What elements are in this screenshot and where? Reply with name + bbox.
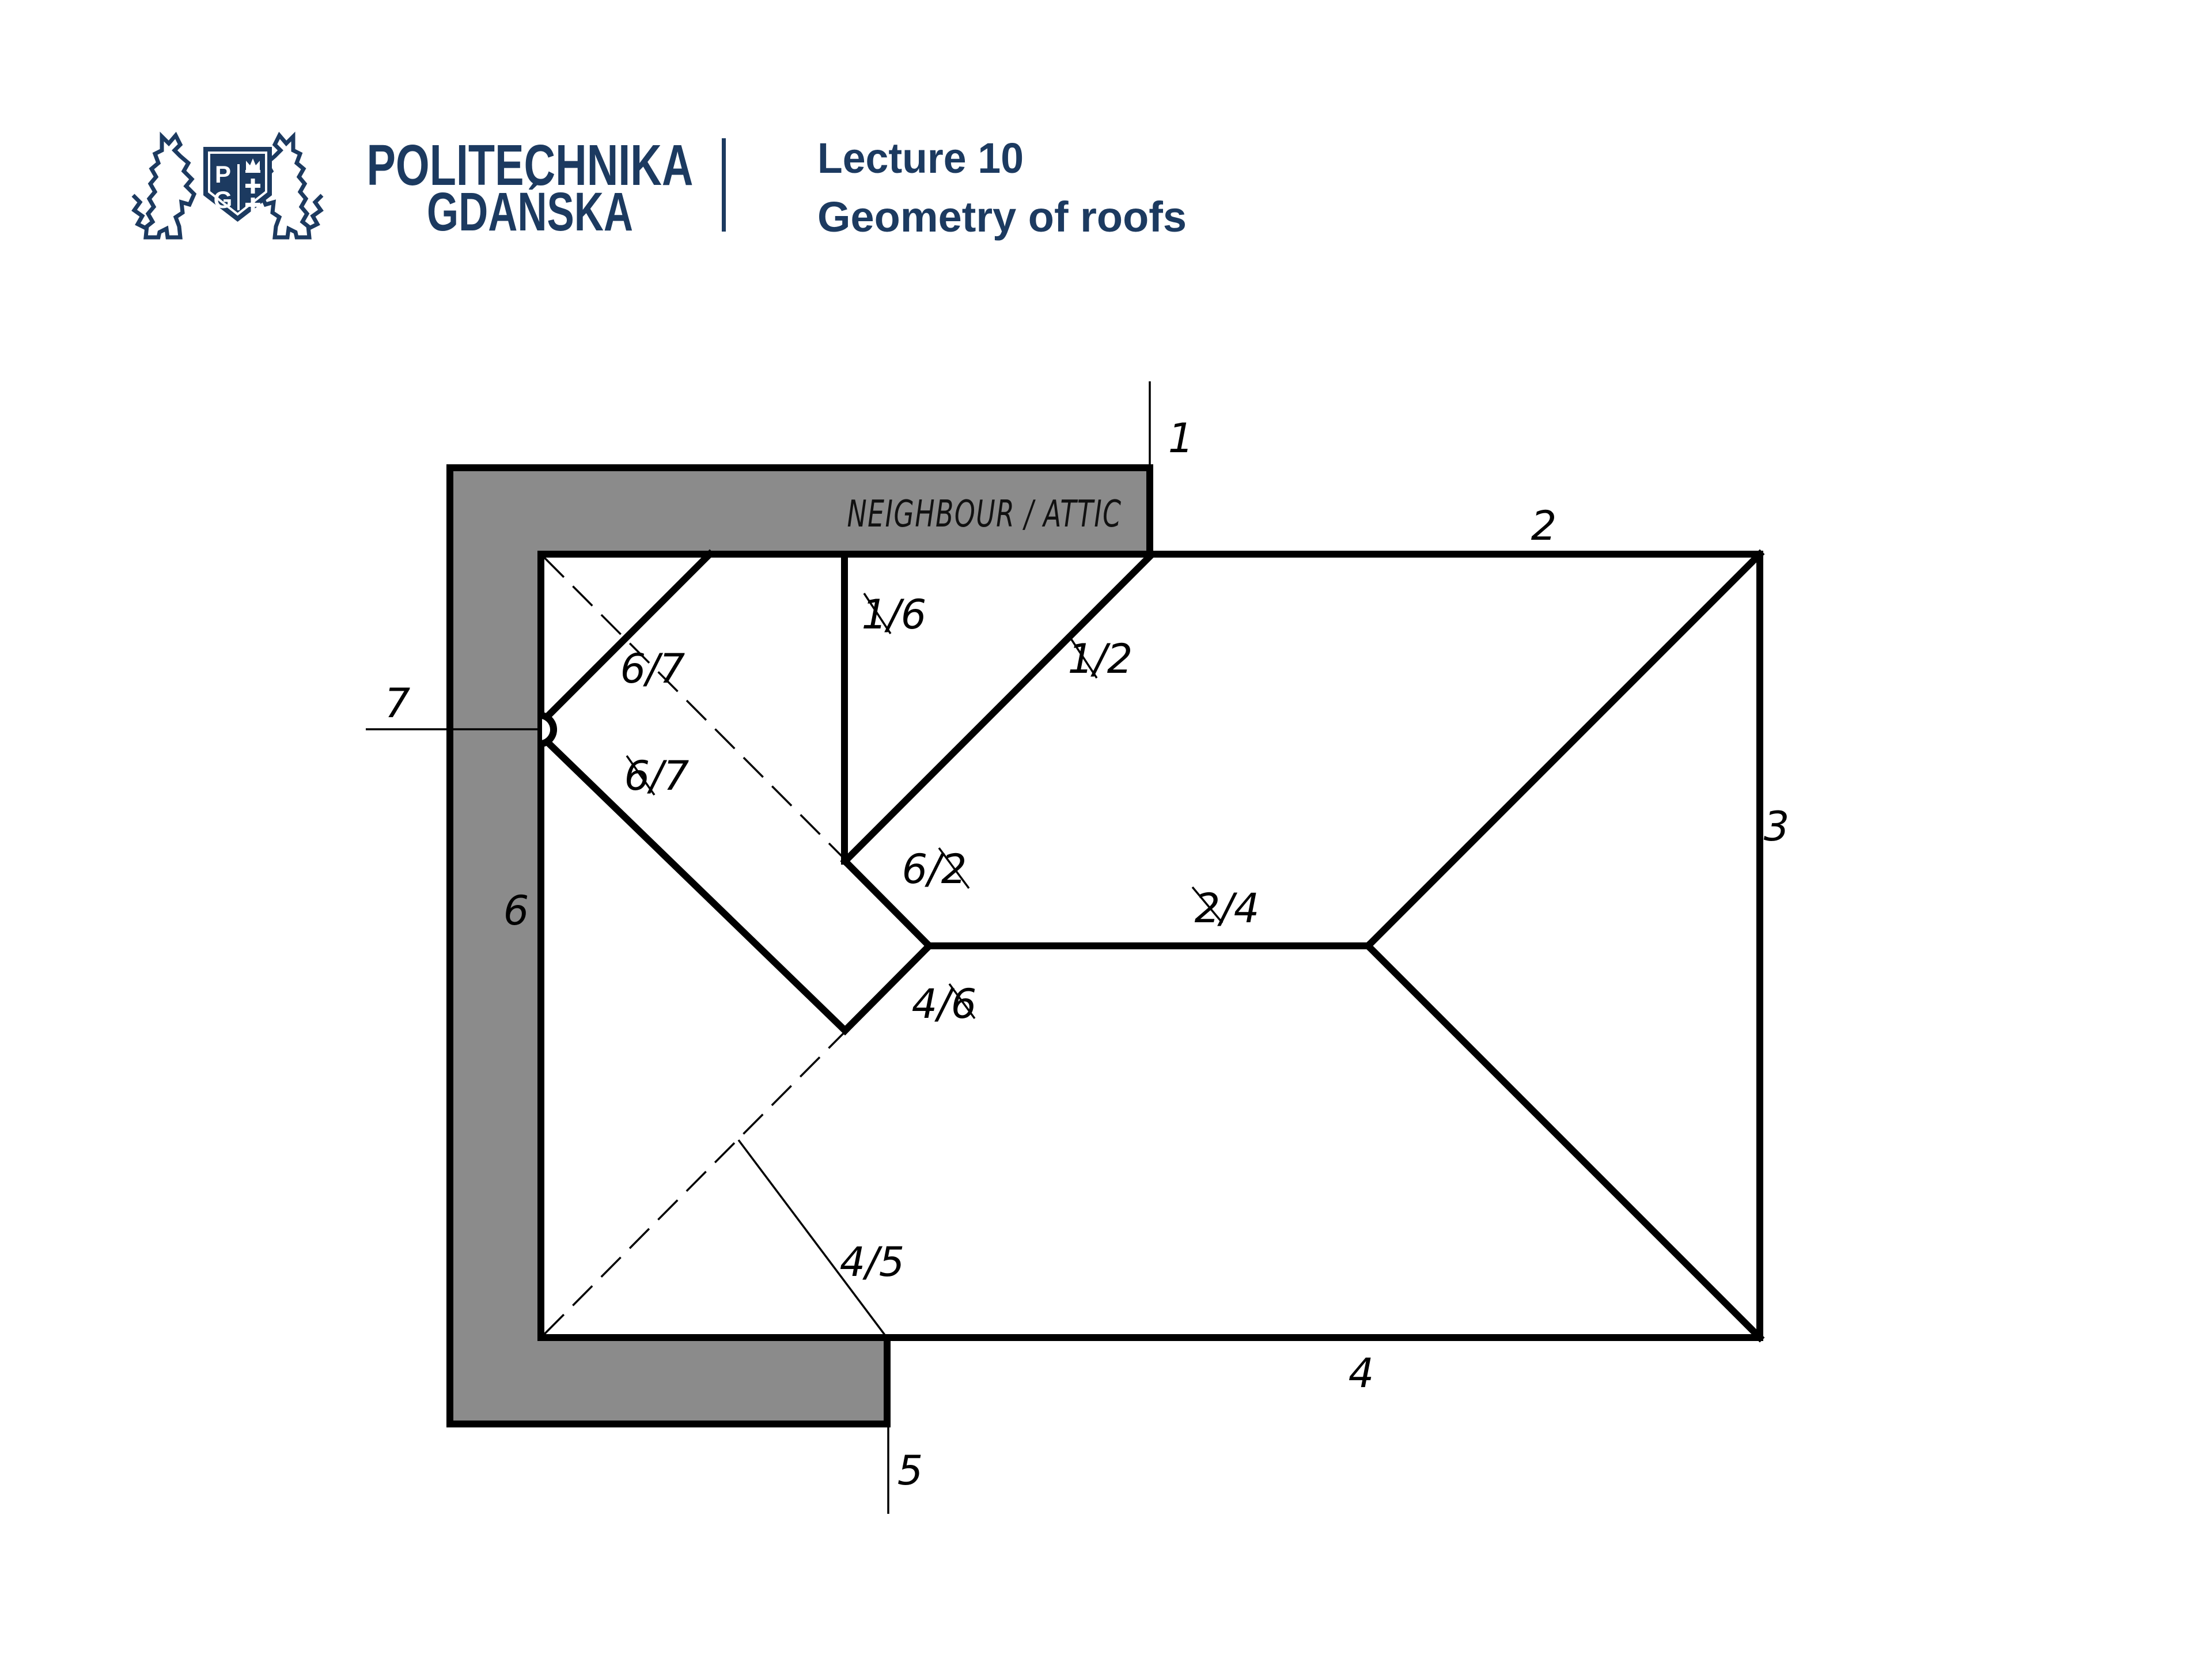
joint-label-1-6: 1/6 [862,591,927,638]
edge-label-4: 4 [1349,1350,1374,1397]
neighbour-attic-label: NEIGHBOUR / ATTIC [847,493,1122,536]
lecture-subtitle: Geometry of roofs [817,193,1187,241]
edge-label-5: 5 [897,1447,923,1494]
joint-label-4-6: 4/6 [912,980,977,1028]
shield-letter-p: P [215,161,231,188]
joint-label-1-2: 1/2 [1068,635,1133,683]
joint-label-6-2: 6/2 [902,846,967,893]
edge-label-3: 3 [1764,803,1790,850]
joint-label-2-4: 2/4 [1195,885,1260,932]
joint-label-6-7-upper: 6/7 [620,645,685,692]
hip-line-top-right [1368,554,1760,946]
edge-label-7: 7 [385,680,411,727]
header-divider [722,138,726,232]
hip-line-bottom-right [1368,946,1760,1338]
roof-plan-diagram: NEIGHBOUR / ATTIC 1 2 3 4 5 6 7 1/6 1/2 … [366,381,1789,1514]
lion-left-icon [133,135,194,237]
brand-line2: GDAŃSKA [427,181,633,243]
joint-label-4-5: 4/5 [840,1238,905,1286]
edge7-point-marker [542,715,554,744]
politechnika-gdanska-logo: P G [133,135,322,237]
lecture-slide: P G POLITECHNIKA GDAŃSKA [0,0,2212,1659]
shield-letter-g: G [214,186,233,213]
hip-line-6-7-lower [546,740,845,1031]
lecture-title: Lecture 10 [817,134,1024,182]
edge-label-6: 6 [503,887,529,934]
construction-line-top-left [544,558,844,858]
construction-line-bottom-left [544,1033,844,1334]
edge-label-2: 2 [1531,502,1557,550]
joint-label-6-7-lower: 6/7 [624,752,690,800]
hip-line-6-7-upper [546,554,710,718]
edge-label-1: 1 [1168,415,1194,462]
pg-shield-icon: P G [203,147,272,222]
header: P G POLITECHNIKA GDAŃSKA [133,133,1187,243]
